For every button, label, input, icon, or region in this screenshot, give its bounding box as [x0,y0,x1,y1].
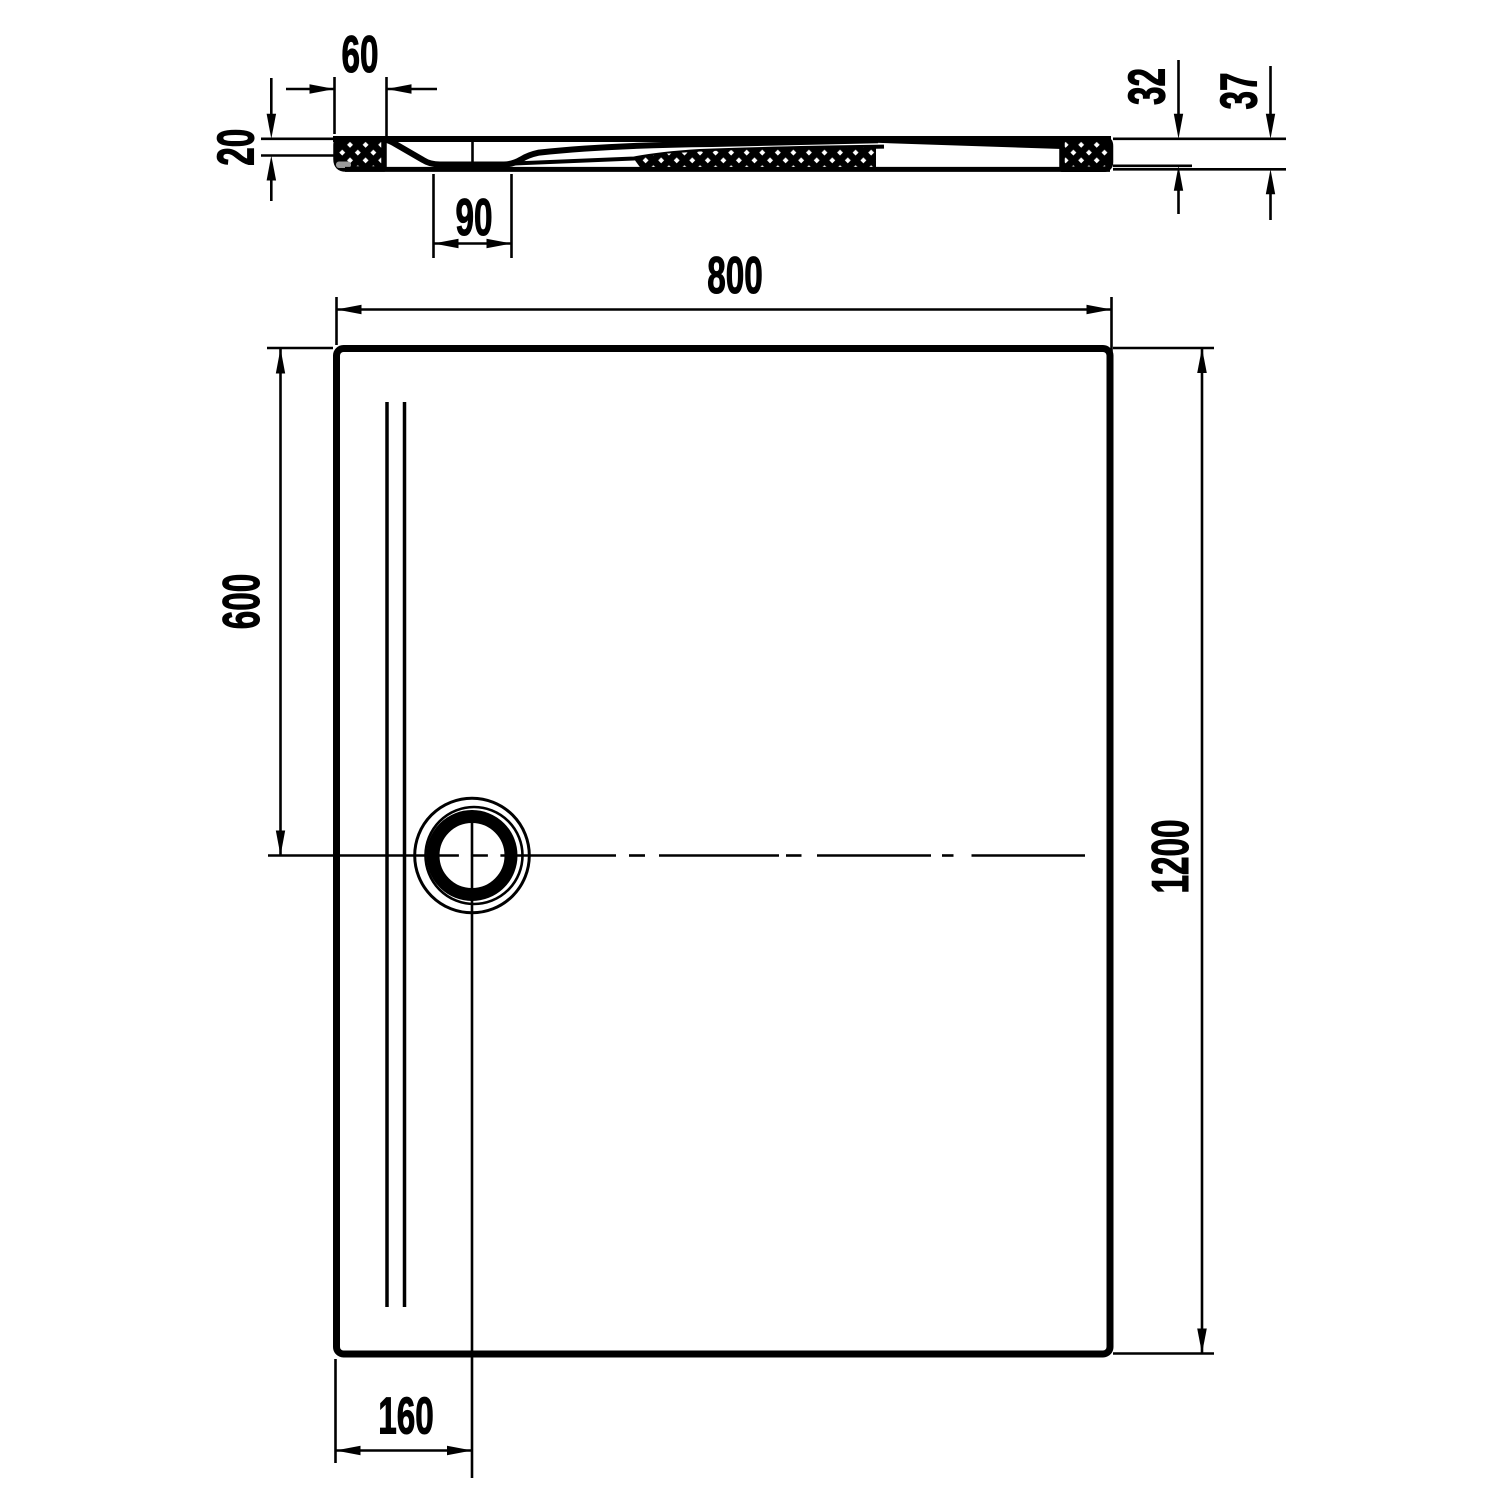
svg-text:90: 90 [455,189,492,247]
svg-text:60: 60 [341,26,378,84]
svg-text:37: 37 [1211,72,1269,109]
svg-text:32: 32 [1119,68,1177,105]
svg-text:160: 160 [378,1388,434,1446]
svg-text:20: 20 [207,129,265,166]
svg-text:600: 600 [213,574,271,630]
svg-text:800: 800 [707,247,763,305]
svg-text:1200: 1200 [1142,819,1200,893]
